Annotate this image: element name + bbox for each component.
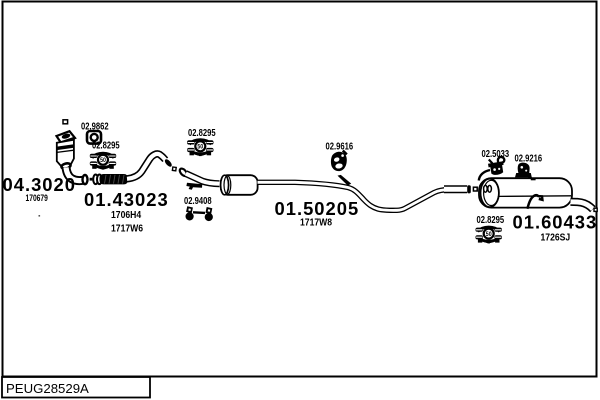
svg-text:02.9862: 02.9862 bbox=[81, 121, 109, 132]
svg-text:02.8295: 02.8295 bbox=[92, 140, 120, 151]
svg-text:170679: 170679 bbox=[26, 193, 49, 203]
svg-text:1726SJ: 1726SJ bbox=[541, 232, 571, 244]
svg-text:02.9408: 02.9408 bbox=[184, 195, 212, 206]
svg-text:02.5033: 02.5033 bbox=[482, 148, 510, 159]
svg-text:02.9616: 02.9616 bbox=[326, 141, 354, 152]
svg-text:01.50205: 01.50205 bbox=[275, 198, 360, 219]
svg-text:1706H4: 1706H4 bbox=[111, 209, 142, 221]
svg-text:01.43023: 01.43023 bbox=[84, 189, 169, 210]
svg-text:PEUG28529A: PEUG28529A bbox=[6, 381, 89, 396]
svg-text:1717W6: 1717W6 bbox=[111, 223, 143, 235]
svg-text:02.9216: 02.9216 bbox=[515, 152, 543, 163]
svg-text:1717W8: 1717W8 bbox=[300, 217, 333, 229]
svg-text:02.8295: 02.8295 bbox=[188, 127, 216, 138]
svg-text:01.60433: 01.60433 bbox=[513, 212, 598, 233]
svg-text:02.8295: 02.8295 bbox=[477, 214, 505, 225]
